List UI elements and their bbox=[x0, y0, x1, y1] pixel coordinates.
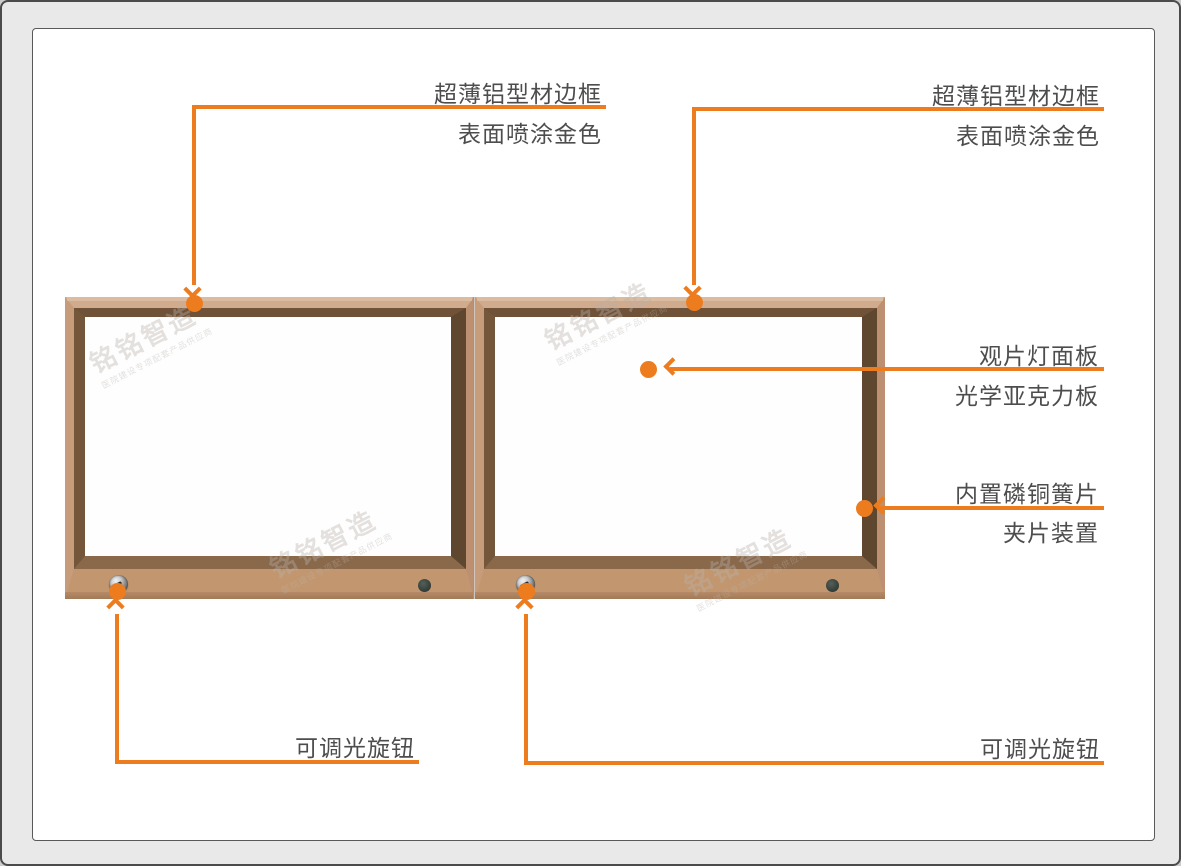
leader-line bbox=[194, 105, 606, 109]
label-panel-line1: 观片灯面板 bbox=[979, 337, 1099, 371]
indicator-dot-icon bbox=[826, 579, 839, 592]
label-frame-right-line1: 超薄铝型材边框 bbox=[932, 77, 1100, 111]
arrow-dot-icon bbox=[109, 583, 126, 600]
leader-line bbox=[115, 614, 119, 764]
leader-line bbox=[524, 614, 528, 765]
label-frame-right-line2: 表面喷涂金色 bbox=[956, 117, 1100, 151]
arrow-dot-icon bbox=[640, 361, 657, 378]
diagram-stage: 铭铭智造 医院建设专项配套产品供应商 铭铭智造 医院建设专项配套产品供应商 铭铭… bbox=[0, 0, 1181, 866]
leader-line bbox=[117, 760, 419, 764]
frame-highlight bbox=[67, 297, 472, 301]
label-frame-left-line2: 表面喷涂金色 bbox=[458, 115, 602, 149]
gold-frame bbox=[65, 297, 474, 599]
acrylic-panel bbox=[74, 308, 466, 569]
frame-bottom-edge bbox=[475, 592, 885, 599]
leader-line bbox=[526, 761, 1104, 765]
leader-line bbox=[692, 107, 696, 285]
leader-line bbox=[880, 506, 1104, 510]
label-dimmer-right: 可调光旋钮 bbox=[980, 730, 1100, 764]
arrow-dot-icon bbox=[518, 583, 535, 600]
frame-highlight bbox=[477, 297, 883, 301]
arrow-dot-icon bbox=[686, 294, 703, 311]
label-clip-line2: 夹片装置 bbox=[1003, 514, 1099, 548]
indicator-dot-icon bbox=[418, 579, 431, 592]
leader-line bbox=[192, 105, 196, 285]
light-box-left bbox=[65, 297, 474, 599]
acrylic-panel bbox=[484, 308, 877, 569]
leader-line bbox=[670, 367, 1104, 371]
arrow-dot-icon bbox=[186, 295, 203, 312]
gold-frame bbox=[475, 297, 885, 599]
panel-seam bbox=[473, 297, 475, 599]
label-panel-line2: 光学亚克力板 bbox=[955, 377, 1099, 411]
label-clip-line1: 内置磷铜簧片 bbox=[955, 475, 1099, 509]
arrow-dot-icon bbox=[856, 500, 873, 517]
label-frame-left-line1: 超薄铝型材边框 bbox=[434, 75, 602, 109]
light-box-right bbox=[475, 297, 885, 599]
frame-bottom-edge bbox=[65, 592, 474, 599]
leader-line bbox=[694, 107, 1104, 111]
label-dimmer-left: 可调光旋钮 bbox=[295, 729, 415, 763]
